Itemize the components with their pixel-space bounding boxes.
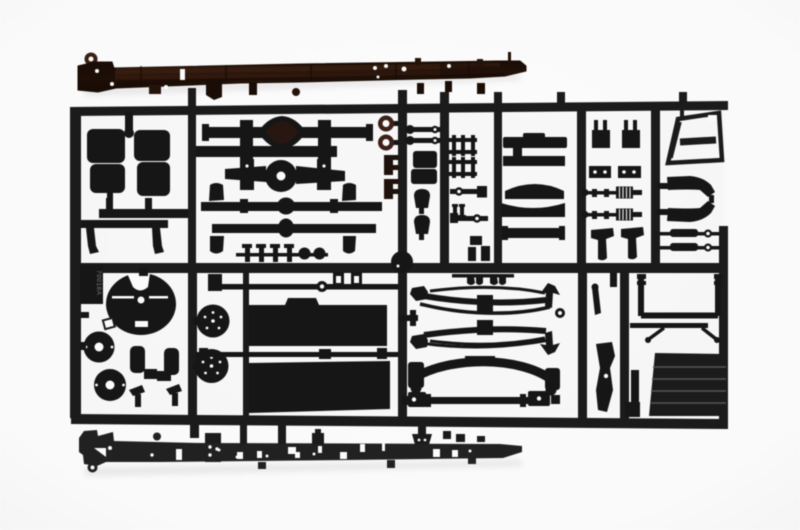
svg-text:70018A: 70018A [95,270,102,296]
